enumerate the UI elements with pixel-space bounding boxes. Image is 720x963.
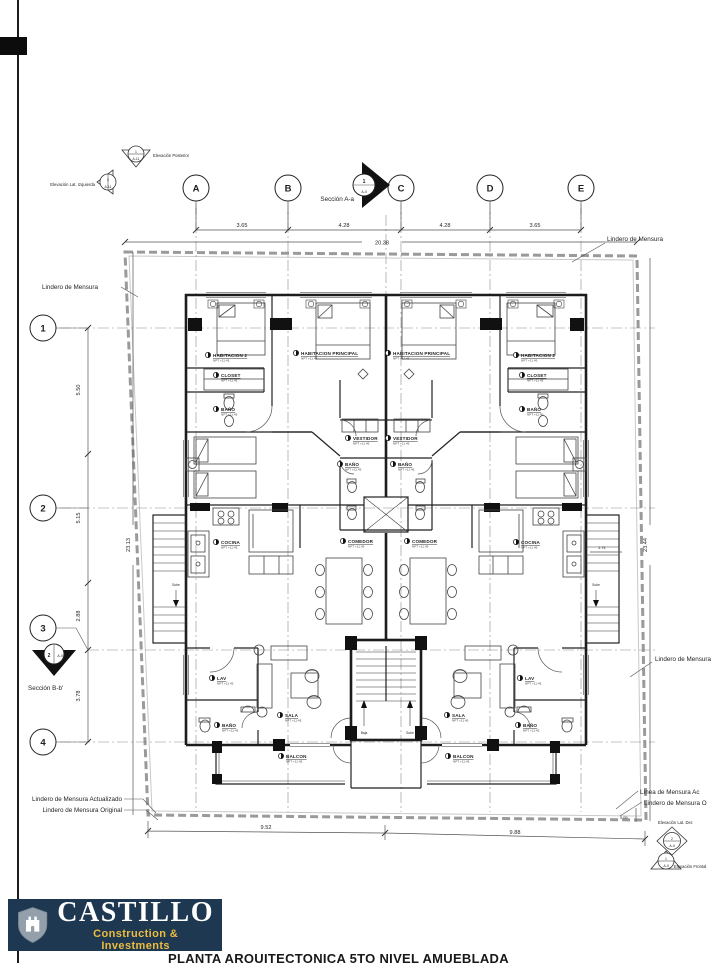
logo-tagline: Construction & Investments bbox=[57, 928, 214, 952]
room-name-text: BAÑO bbox=[523, 722, 537, 728]
elev-lat-der-number: 2 bbox=[671, 837, 673, 841]
dim-bottom-left: 9.52 bbox=[261, 825, 272, 831]
room-name-text: BAÑO bbox=[527, 406, 541, 412]
room-name-text: SALA bbox=[285, 713, 299, 718]
elev-frontal-sheet: A-II bbox=[663, 864, 668, 868]
dim-left-4: 3.78 bbox=[76, 691, 82, 702]
dim-left-3: 2.88 bbox=[76, 611, 82, 622]
room-npt-text: NPT +11.45 bbox=[286, 759, 303, 763]
room-label: VESTIDORNPT +11.45 bbox=[385, 435, 418, 445]
room-npt-text: NPT +11.45 bbox=[412, 544, 429, 548]
room-npt-text: NPT +11.45 bbox=[452, 718, 469, 722]
room-label: BAÑONPT +11.45 bbox=[214, 722, 238, 732]
section-marker-b: 2 A-II Sección B-b' bbox=[28, 644, 76, 692]
grid-row-1: 1 bbox=[40, 324, 46, 335]
elevation-marker-lat-izq: 2 A-11 Elevación Lat. Izquierda bbox=[50, 170, 116, 194]
room-npt-text: NPT +11.45 bbox=[221, 545, 238, 549]
room-label: LAVNPT +11.45 bbox=[209, 675, 233, 685]
dim-left-overall: 23.13 bbox=[126, 538, 132, 552]
lindero-right-mid-label: Lindero de Mensura bbox=[655, 656, 712, 663]
room-npt-text: NPT +11.45 bbox=[345, 467, 362, 471]
elev-lat-izq-number: 2 bbox=[107, 178, 109, 182]
room-npt-text: NPT +11.45 bbox=[527, 412, 544, 416]
room-name-text: COMEDOR bbox=[348, 539, 374, 544]
room-label: COMEDORNPT +11.45 bbox=[404, 538, 437, 548]
room-name-text: CLOSET bbox=[221, 373, 241, 378]
elevation-marker-lat-der: 2 A-II Elevación Lat. Der. bbox=[657, 820, 693, 855]
room-npt-text: NPT +11.45 bbox=[348, 544, 365, 548]
grid-markers: A B C D E 1 2 3 4 bbox=[30, 175, 594, 755]
lindero-original-right-label: Lindero de Mensura O bbox=[644, 800, 707, 807]
elev-frontal-number: 1 bbox=[665, 857, 667, 861]
grid-col-a: A bbox=[193, 184, 200, 195]
stair-label-sube-left: Sube bbox=[172, 583, 180, 587]
section-marker-a: 1 A-II Sección A-a bbox=[320, 162, 390, 208]
room-label: BAÑONPT +11.45 bbox=[515, 722, 539, 732]
room-npt-text: NPT +11.45 bbox=[398, 467, 415, 471]
room-label: CLOSETNPT +11.45 bbox=[213, 372, 240, 382]
elev-posterior-sheet: A-11 bbox=[133, 157, 140, 161]
room-npt-text: NPT +11.45 bbox=[213, 358, 230, 362]
room-npt-text: NPT +11.45 bbox=[527, 378, 544, 382]
grid-col-b: B bbox=[285, 184, 292, 195]
dim-top-overall: 20.38 bbox=[375, 241, 389, 247]
elev-lat-izq-label: Elevación Lat. Izquierda bbox=[50, 182, 95, 187]
dim-bottom-right: 9.88 bbox=[510, 830, 521, 836]
room-label: BALCONNPT +11.45 bbox=[278, 753, 307, 763]
section-b-sheet: A-II bbox=[57, 654, 62, 658]
stair-label-sube-right: Sube bbox=[592, 583, 600, 587]
room-npt-text: NPT +11.45 bbox=[453, 759, 470, 763]
room-name-text: HABITACION PRINCIPAL bbox=[301, 351, 358, 356]
lindero-actualizado-label: Lindero de Mensura Actualizado bbox=[32, 796, 122, 803]
linea-actualizada-label: Línea de Mensura Ac bbox=[640, 789, 700, 796]
dim-top-1: 3.65 bbox=[237, 223, 248, 229]
floorplan-canvas: Baja Sube Sube Sube 3.65 4.28 4.28 3.65 … bbox=[0, 0, 720, 963]
company-logo: CASTILLO Construction & Investments bbox=[8, 899, 222, 951]
room-name-text: VESTIDOR bbox=[393, 436, 418, 441]
room-npt-text: NPT +11.45 bbox=[221, 412, 238, 416]
dim-top-4: 3.65 bbox=[530, 223, 541, 229]
elevation-marker-posterior: 1 A-11 Elevación Posterior bbox=[122, 146, 190, 167]
room-label: VESTIDORNPT +11.45 bbox=[345, 435, 378, 445]
room-label: BAÑONPT +11.45 bbox=[337, 461, 361, 471]
room-label: CLOSETNPT +11.45 bbox=[519, 372, 546, 382]
room-name-text: LAV bbox=[217, 676, 227, 681]
room-name-text: HABITACION 2 bbox=[213, 353, 247, 358]
grid-row-4: 4 bbox=[40, 738, 46, 749]
grid-col-d: D bbox=[487, 184, 494, 195]
room-npt-text: NPT +11.45 bbox=[521, 358, 538, 362]
room-label: HABITACION 2NPT +11.45 bbox=[513, 352, 555, 362]
dim-stair-width: 1.74 bbox=[598, 545, 606, 550]
room-label: COCINANPT +11.45 bbox=[213, 539, 240, 549]
room-name-text: VESTIDOR bbox=[353, 436, 378, 441]
lindero-left-label: Lindero de Mensura bbox=[42, 284, 99, 291]
section-a-label: Sección A-a bbox=[320, 196, 354, 203]
room-name-text: BALCON bbox=[286, 754, 307, 759]
grid-col-c: C bbox=[398, 184, 405, 195]
room-label: COMEDORNPT +11.45 bbox=[340, 538, 373, 548]
dim-top-3: 4.28 bbox=[440, 223, 451, 229]
dim-right-overall: 23.44 bbox=[643, 538, 649, 552]
dim-offset: 0.09 bbox=[620, 815, 628, 820]
section-a-number: 1 bbox=[363, 179, 366, 185]
room-npt-text: NPT +11.45 bbox=[525, 681, 542, 685]
room-npt-text: NPT +11.45 bbox=[301, 356, 318, 360]
room-label: BAÑONPT +11.45 bbox=[390, 461, 414, 471]
room-npt-text: NPT +11.45 bbox=[523, 728, 540, 732]
room-npt-text: NPT +11.45 bbox=[393, 356, 410, 360]
grid-col-e: E bbox=[578, 184, 584, 195]
room-label: BAÑONPT +11.45 bbox=[519, 406, 543, 416]
room-label: HABITACION 2NPT +11.45 bbox=[205, 352, 247, 362]
boundary-annotations: Lindero de Mensura Lindero de Mensura Li… bbox=[32, 236, 711, 820]
room-name-text: BAÑO bbox=[222, 722, 236, 728]
room-name-text: HABITACION PRINCIPAL bbox=[393, 351, 450, 356]
elevation-marker-frontal: 1 A-II Elevación Frontal bbox=[651, 851, 706, 869]
room-name-text: COMEDOR bbox=[412, 539, 438, 544]
room-name-text: HABITACION 2 bbox=[521, 353, 555, 358]
elev-frontal-label: Elevación Frontal bbox=[674, 864, 706, 869]
elev-lat-der-label: Elevación Lat. Der. bbox=[658, 820, 693, 825]
room-label: SALANPT +11.45 bbox=[277, 712, 301, 722]
room-npt-text: NPT +11.45 bbox=[222, 728, 239, 732]
room-name-text: BAÑO bbox=[221, 406, 235, 412]
room-label: LAVNPT +11.45 bbox=[517, 675, 541, 685]
room-npt-text: NPT +11.45 bbox=[285, 718, 302, 722]
room-name-text: COCINA bbox=[521, 540, 541, 545]
room-name-text: SALA bbox=[452, 713, 466, 718]
sheet-title: PLANTA ARQUITECTONICA 5TO NIVEL AMUEBLAD… bbox=[168, 951, 509, 963]
grid-row-2: 2 bbox=[40, 504, 45, 515]
elev-lat-der-sheet: A-II bbox=[669, 844, 674, 848]
room-npt-text: NPT +11.45 bbox=[353, 441, 370, 445]
section-b-number: 2 bbox=[48, 653, 51, 659]
shield-castle-icon bbox=[16, 903, 49, 947]
lindero-right-top-label: Lindero de Mensura bbox=[607, 236, 664, 243]
grid-row-3: 3 bbox=[40, 624, 45, 635]
section-a-sheet: A-II bbox=[361, 190, 366, 194]
room-npt-text: NPT +11.45 bbox=[393, 441, 410, 445]
room-name-text: BAÑO bbox=[345, 461, 359, 467]
section-b-label: Sección B-b' bbox=[28, 685, 63, 692]
dim-top-2: 4.28 bbox=[339, 223, 350, 229]
room-name-text: BAÑO bbox=[398, 461, 412, 467]
dim-left-1: 5.50 bbox=[76, 385, 82, 396]
room-name-text: BALCON bbox=[453, 754, 474, 759]
room-label: SALANPT +11.45 bbox=[444, 712, 468, 722]
room-npt-text: NPT +11.45 bbox=[521, 545, 538, 549]
room-npt-text: NPT +11.45 bbox=[221, 378, 238, 382]
room-npt-text: NPT +11.45 bbox=[217, 681, 234, 685]
room-label: COCINANPT +11.45 bbox=[513, 539, 540, 549]
stair-label-baja: Baja bbox=[361, 731, 368, 735]
room-name-text: LAV bbox=[525, 676, 535, 681]
room-name-text: COCINA bbox=[221, 540, 241, 545]
drawing-sheet: Baja Sube Sube Sube 3.65 4.28 4.28 3.65 … bbox=[0, 0, 720, 963]
logo-name: CASTILLO bbox=[57, 899, 214, 927]
lindero-original-label: Lindero de Mensura Original bbox=[43, 807, 122, 814]
elev-posterior-number: 1 bbox=[135, 150, 137, 154]
elev-lat-izq-sheet: A-11 bbox=[105, 185, 112, 189]
elev-posterior-label: Elevación Posterior bbox=[153, 153, 190, 158]
stair-label-sube: Sube bbox=[406, 731, 414, 735]
room-name-text: CLOSET bbox=[527, 373, 547, 378]
dim-left-2: 5.15 bbox=[76, 513, 82, 524]
room-label: BAÑONPT +11.45 bbox=[213, 406, 237, 416]
room-label: BALCONNPT +11.45 bbox=[445, 753, 474, 763]
